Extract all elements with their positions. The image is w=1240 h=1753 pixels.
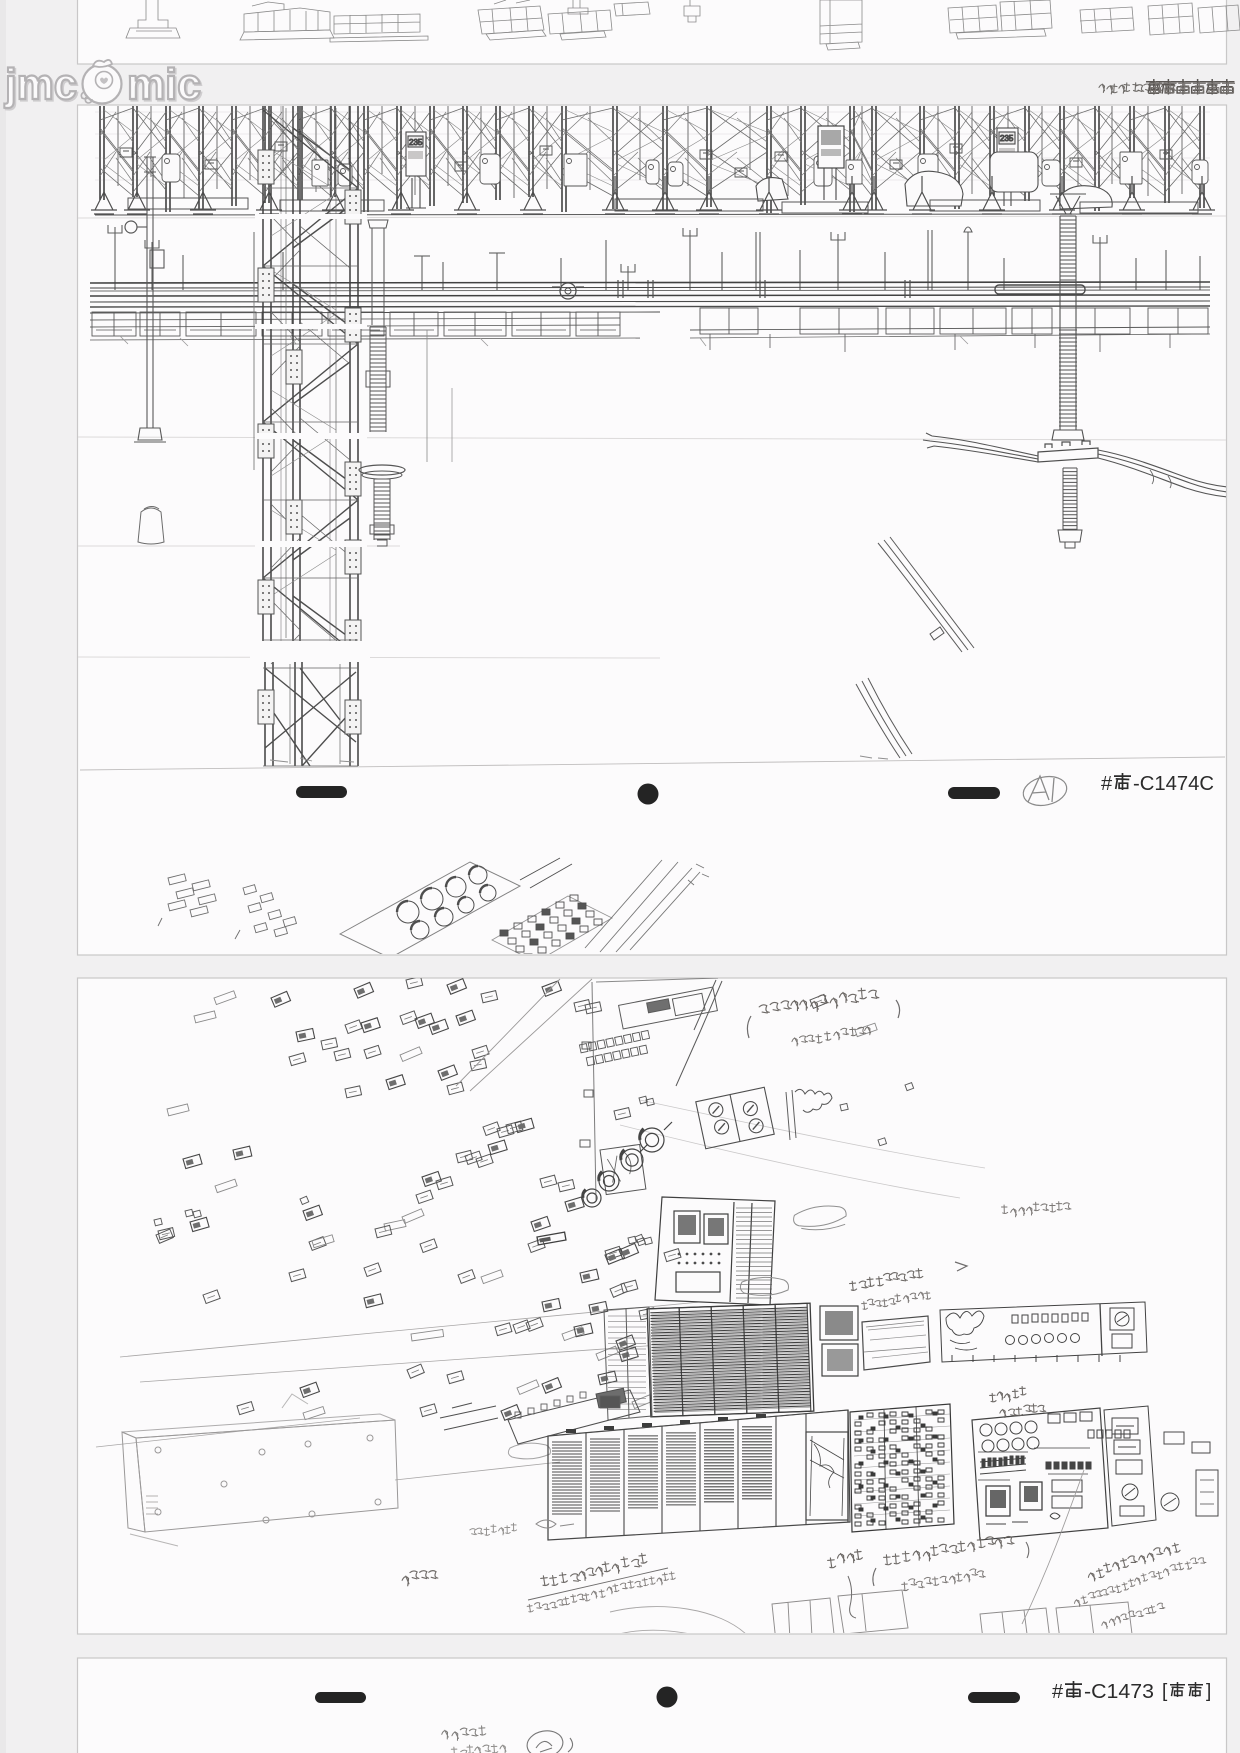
svg-text:]: ] — [1206, 1681, 1211, 1702]
svg-text:-C1474C: -C1474C — [1133, 773, 1214, 795]
svg-text:#: # — [1101, 773, 1113, 795]
svg-text:235: 235 — [409, 138, 423, 147]
svg-text:-C1473: -C1473 — [1084, 1681, 1154, 1703]
svg-text:mic: mic — [127, 60, 201, 109]
svg-text:[: [ — [1162, 1681, 1168, 1702]
svg-text:jmc: jmc — [4, 60, 77, 109]
svg-text:#: # — [1052, 1681, 1064, 1703]
svg-text:235: 235 — [1000, 134, 1014, 143]
